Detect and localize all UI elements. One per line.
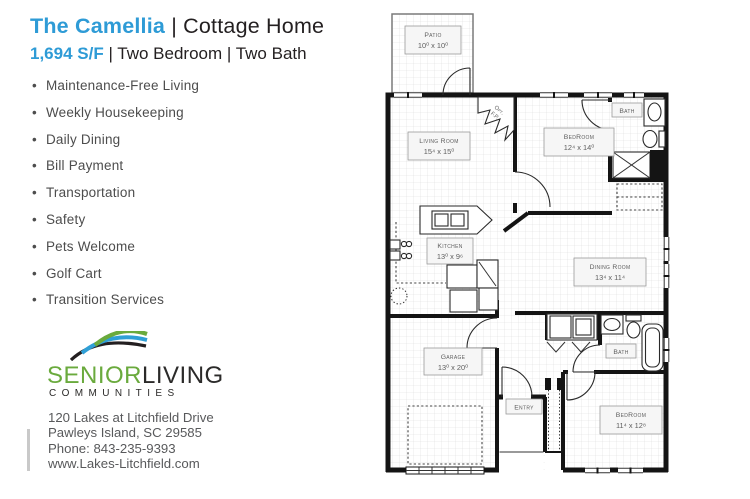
bath1-label: Bath (612, 103, 642, 117)
list-item: Transportation (32, 185, 199, 200)
bedroom2-label: BedRoom 11⁴ x 12⁸ (600, 406, 662, 434)
list-item: Safety (32, 212, 199, 227)
bed-bath-count: | Two Bedroom | Two Bath (104, 44, 307, 63)
garage-label: Garage 13⁰ x 20⁰ (424, 348, 482, 375)
page-title: The Camellia | Cottage Home (30, 14, 324, 39)
flyer-page: The Camellia | Cottage Home 1,694 S/F | … (0, 0, 750, 499)
title-block: The Camellia | Cottage Home 1,694 S/F | … (30, 14, 324, 64)
square-footage: 1,694 S/F (30, 44, 104, 63)
list-item: Maintenance-Free Living (32, 78, 199, 93)
logo-senior: SENIOR (47, 362, 142, 389)
website-url: www.Lakes-Litchfield.com (48, 456, 214, 471)
logo-wordmark: SENIORLIVING (47, 362, 224, 390)
svg-text:Dining Room: Dining Room (590, 264, 631, 271)
list-item: Golf Cart (32, 266, 199, 281)
svg-text:BedRoom: BedRoom (616, 412, 646, 419)
svg-text:Entry: Entry (514, 405, 534, 412)
contact-block: 120 Lakes at Litchfield Drive Pawleys Is… (48, 410, 214, 472)
svg-text:Patio: Patio (424, 32, 441, 39)
phone-number: Phone: 843-235-9393 (48, 441, 214, 456)
svg-text:13⁴ x 11⁴: 13⁴ x 11⁴ (595, 273, 625, 282)
bath2-label: Bath (606, 344, 636, 358)
list-item: Daily Dining (32, 132, 199, 147)
svg-text:15⁴ x 15⁰: 15⁴ x 15⁰ (424, 147, 454, 156)
list-item: Weekly Housekeeping (32, 105, 199, 120)
svg-text:Living Room: Living Room (419, 138, 458, 145)
entry-label: Entry (506, 399, 542, 414)
bedroom1-label: BedRoom 12⁴ x 14⁰ (544, 128, 614, 156)
logo-communities: COMMUNITIES (49, 388, 180, 399)
svg-text:12⁴ x 14⁰: 12⁴ x 14⁰ (564, 143, 594, 152)
svg-text:Bath: Bath (619, 108, 634, 115)
list-item: Bill Payment (32, 158, 199, 173)
svg-text:Kitchen: Kitchen (437, 243, 462, 250)
floor-plan: Opt. F.P. (383, 6, 675, 492)
amenities-list: Maintenance-Free Living Weekly Housekeep… (32, 78, 199, 319)
svg-text:Garage: Garage (441, 354, 466, 361)
svg-text:13⁰ x 20⁰: 13⁰ x 20⁰ (438, 363, 468, 372)
svg-text:10⁰ x 10⁰: 10⁰ x 10⁰ (418, 41, 448, 50)
logo-living: LIVING (142, 362, 224, 389)
dining-room-label: Dining Room 13⁴ x 11⁴ (574, 258, 646, 286)
plan-name: The Camellia (30, 14, 165, 38)
garage-door (406, 467, 484, 474)
address-line1: 120 Lakes at Litchfield Drive (48, 410, 214, 425)
address-line2: Pawleys Island, SC 29585 (48, 425, 214, 440)
svg-text:BedRoom: BedRoom (564, 134, 594, 141)
living-room-label: Living Room 15⁴ x 15⁰ (408, 132, 470, 160)
list-item: Pets Welcome (32, 239, 199, 254)
svg-text:11⁴ x 12⁸: 11⁴ x 12⁸ (616, 421, 646, 430)
plan-type: | Cottage Home (165, 14, 324, 38)
kitchen-label: Kitchen 13⁰ x 9⁶ (427, 238, 473, 264)
svg-text:Bath: Bath (613, 349, 628, 356)
logo-arcs-icon (70, 331, 148, 361)
patio-label: Patio 10⁰ x 10⁰ (405, 26, 461, 54)
decorative-rule (27, 429, 30, 471)
page-subtitle: 1,694 S/F | Two Bedroom | Two Bath (30, 44, 324, 64)
svg-text:13⁰ x 9⁶: 13⁰ x 9⁶ (437, 252, 463, 261)
list-item: Transition Services (32, 292, 199, 307)
